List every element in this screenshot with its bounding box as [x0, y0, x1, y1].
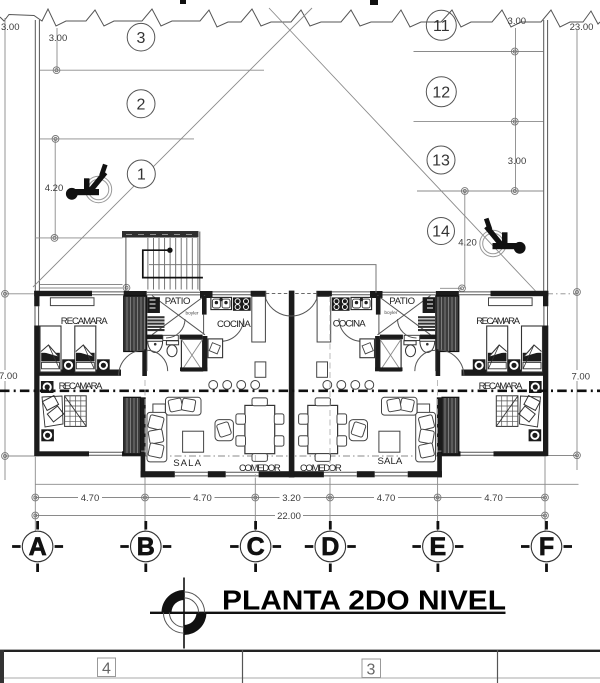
- svg-text:1: 1: [137, 167, 146, 184]
- svg-text:boyler: boyler: [384, 310, 397, 316]
- svg-text:RECAMARA: RECAMARA: [61, 316, 108, 327]
- svg-text:4.20: 4.20: [458, 238, 477, 249]
- svg-text:SALA: SALA: [173, 458, 201, 469]
- svg-text:4.20: 4.20: [45, 183, 64, 194]
- svg-text:12: 12: [432, 85, 450, 102]
- svg-text:SALA: SALA: [378, 456, 403, 467]
- svg-text:COCINA: COCINA: [217, 319, 251, 330]
- svg-text:4.70: 4.70: [377, 493, 396, 504]
- svg-text:D: D: [321, 533, 339, 561]
- svg-text:2: 2: [137, 96, 146, 113]
- svg-text:3.00: 3.00: [508, 16, 527, 27]
- svg-text:3: 3: [137, 30, 146, 47]
- svg-text:7.00: 7.00: [0, 371, 18, 382]
- svg-text:22.00: 22.00: [277, 511, 301, 522]
- svg-text:3.00: 3.00: [508, 156, 527, 167]
- svg-text:PATIO: PATIO: [165, 296, 191, 307]
- svg-text:4.70: 4.70: [193, 493, 212, 504]
- svg-text:COCINA: COCINA: [333, 319, 366, 330]
- svg-text:COMEDOR: COMEDOR: [239, 463, 281, 474]
- svg-text:E: E: [430, 533, 447, 561]
- svg-text:B: B: [137, 533, 155, 561]
- svg-text:C: C: [247, 533, 265, 561]
- svg-text:7.00: 7.00: [572, 372, 591, 383]
- svg-text:COMEDOR: COMEDOR: [300, 463, 342, 474]
- svg-text:3.00: 3.00: [49, 33, 68, 44]
- svg-text:3: 3: [367, 662, 376, 679]
- svg-text:PATIO: PATIO: [389, 296, 415, 307]
- svg-text:F: F: [539, 533, 554, 561]
- svg-text:A: A: [29, 533, 47, 561]
- svg-text:4.70: 4.70: [81, 493, 100, 504]
- svg-text:boyler: boyler: [185, 311, 198, 317]
- svg-text:4: 4: [102, 661, 111, 678]
- svg-text:23.00: 23.00: [570, 22, 594, 33]
- svg-text:14: 14: [432, 224, 450, 241]
- svg-text:3.00: 3.00: [1, 22, 20, 33]
- svg-text:4.70: 4.70: [484, 493, 503, 504]
- svg-text:3.20: 3.20: [282, 493, 301, 504]
- svg-text:RECAMARA: RECAMARA: [476, 316, 520, 327]
- svg-text:13: 13: [432, 153, 450, 170]
- svg-text:PLANTA 2DO NIVEL: PLANTA 2DO NIVEL: [222, 585, 506, 616]
- svg-text:11: 11: [433, 18, 450, 35]
